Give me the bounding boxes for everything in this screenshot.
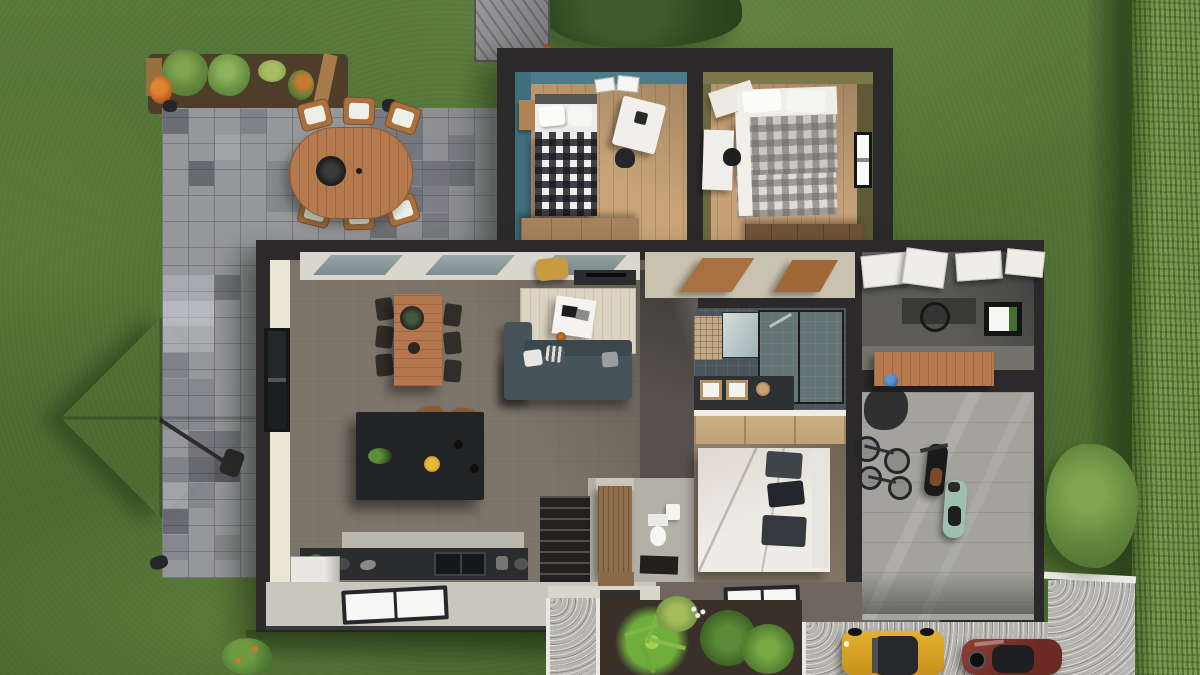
- palm-plant-small: [742, 624, 794, 674]
- bed-headboard: [535, 94, 597, 104]
- windshield: [872, 638, 878, 673]
- pillow: [786, 89, 825, 113]
- toilet-bowl: [650, 526, 666, 546]
- island-item: [454, 440, 463, 449]
- scooter-front: [948, 482, 960, 492]
- towel-roll: [756, 382, 770, 396]
- car-red: [962, 639, 1062, 675]
- car-wheel: [920, 628, 934, 636]
- paver-tile: [189, 161, 214, 186]
- dish: [359, 559, 376, 572]
- white-flowers: [686, 602, 712, 620]
- toilet-tank: [648, 514, 668, 526]
- motorcycle-seat: [929, 467, 943, 486]
- counter-top-edge: [342, 532, 524, 549]
- bed-headboard: [812, 450, 828, 568]
- car-wheel: [968, 651, 986, 669]
- staircase: [540, 496, 590, 582]
- office-chair: [920, 302, 950, 332]
- island-item: [470, 464, 479, 473]
- fruit-bowl: [424, 456, 440, 472]
- cushion: [601, 351, 618, 367]
- tall-window: [264, 328, 290, 432]
- paver-tile: [215, 535, 240, 560]
- olive-wall-top: [703, 72, 873, 84]
- open-door: [774, 260, 838, 292]
- mixed-flowers: [288, 70, 314, 100]
- hand-basin: [666, 504, 680, 520]
- basin: [700, 380, 722, 400]
- paver-tile: [163, 509, 188, 534]
- skylight: [341, 585, 449, 625]
- dining-chair: [443, 331, 462, 355]
- house-shadow: [246, 630, 566, 664]
- bedroom-wing: [497, 48, 893, 256]
- dining-chair: [375, 353, 394, 376]
- wooden-cupboard: [598, 486, 632, 576]
- paver-tile: [163, 109, 188, 134]
- paver-tile: [449, 161, 474, 186]
- paver-tile: [241, 109, 266, 134]
- doormat: [640, 555, 679, 574]
- dark-pillow: [767, 480, 805, 508]
- green-flowers: [258, 60, 286, 82]
- glass-pane: [313, 255, 403, 275]
- centerpiece: [400, 306, 424, 330]
- boundary-hedge: [1132, 0, 1200, 675]
- plaid-duvet: [736, 114, 838, 177]
- dining-chair: [375, 325, 394, 349]
- flowering-shrub: [222, 638, 272, 675]
- kettle: [514, 558, 528, 570]
- outdoor-dining-table: [289, 127, 413, 219]
- front-path: [546, 598, 600, 675]
- patio-lamp: [163, 100, 177, 112]
- mosaic-tiles: [694, 316, 722, 360]
- striped-cushion: [545, 345, 565, 363]
- hallway: [645, 252, 855, 298]
- garden-window: [984, 302, 1022, 336]
- paver-tile: [215, 275, 240, 300]
- white-cabinet: [902, 247, 949, 288]
- paver-tile: [423, 213, 448, 238]
- dark-pillow: [765, 451, 803, 479]
- double-sink: [434, 552, 486, 576]
- garage-floor-shadow: [862, 570, 1034, 614]
- dining-chair: [375, 297, 395, 321]
- office-chair: [864, 386, 908, 430]
- nightstand: [519, 100, 535, 130]
- paver-tile: [215, 135, 240, 160]
- desk-chair: [723, 148, 741, 166]
- pillow: [742, 88, 782, 113]
- car-roof: [874, 636, 918, 675]
- car-yellow: [842, 631, 944, 675]
- throw-blanket: [761, 515, 807, 547]
- vegetables: [368, 448, 392, 464]
- scooter-seat: [948, 506, 961, 526]
- cushion: [523, 349, 543, 367]
- front-door: [598, 572, 634, 586]
- white-cabinet: [1005, 248, 1046, 278]
- wall-poster: [594, 77, 616, 94]
- car-roof: [992, 645, 1034, 673]
- white-cabinet: [955, 250, 1003, 281]
- desk-chair: [615, 148, 635, 168]
- grill-bowl: [316, 156, 346, 186]
- pillow: [538, 105, 566, 128]
- pillow: [567, 105, 592, 127]
- jar: [496, 556, 508, 570]
- main-wing: [256, 240, 1044, 632]
- bush: [208, 54, 250, 96]
- car-wheel: [848, 628, 862, 636]
- garden-bush: [1046, 444, 1138, 568]
- window: [854, 132, 872, 188]
- table-item: [356, 168, 362, 174]
- paver-tile: [449, 135, 474, 160]
- table-item: [408, 342, 420, 354]
- tv: [586, 273, 626, 277]
- mirror: [722, 312, 760, 358]
- corridor: [640, 270, 694, 480]
- headlight: [844, 641, 849, 647]
- wall-poster: [616, 75, 640, 93]
- open-door: [680, 258, 755, 292]
- dining-chair: [443, 359, 462, 382]
- wardrobe: [694, 410, 846, 444]
- bed-duvet: [698, 448, 830, 572]
- mustard-armchair: [535, 256, 569, 281]
- basin: [726, 380, 748, 400]
- outdoor-chair: [343, 96, 376, 125]
- floor-plan-scene: [0, 0, 1200, 675]
- paver-tile: [189, 483, 214, 508]
- paver-tile: [163, 535, 188, 560]
- gingham-duvet: [535, 132, 597, 216]
- glass-pane: [425, 255, 515, 275]
- dining-chair: [443, 303, 463, 327]
